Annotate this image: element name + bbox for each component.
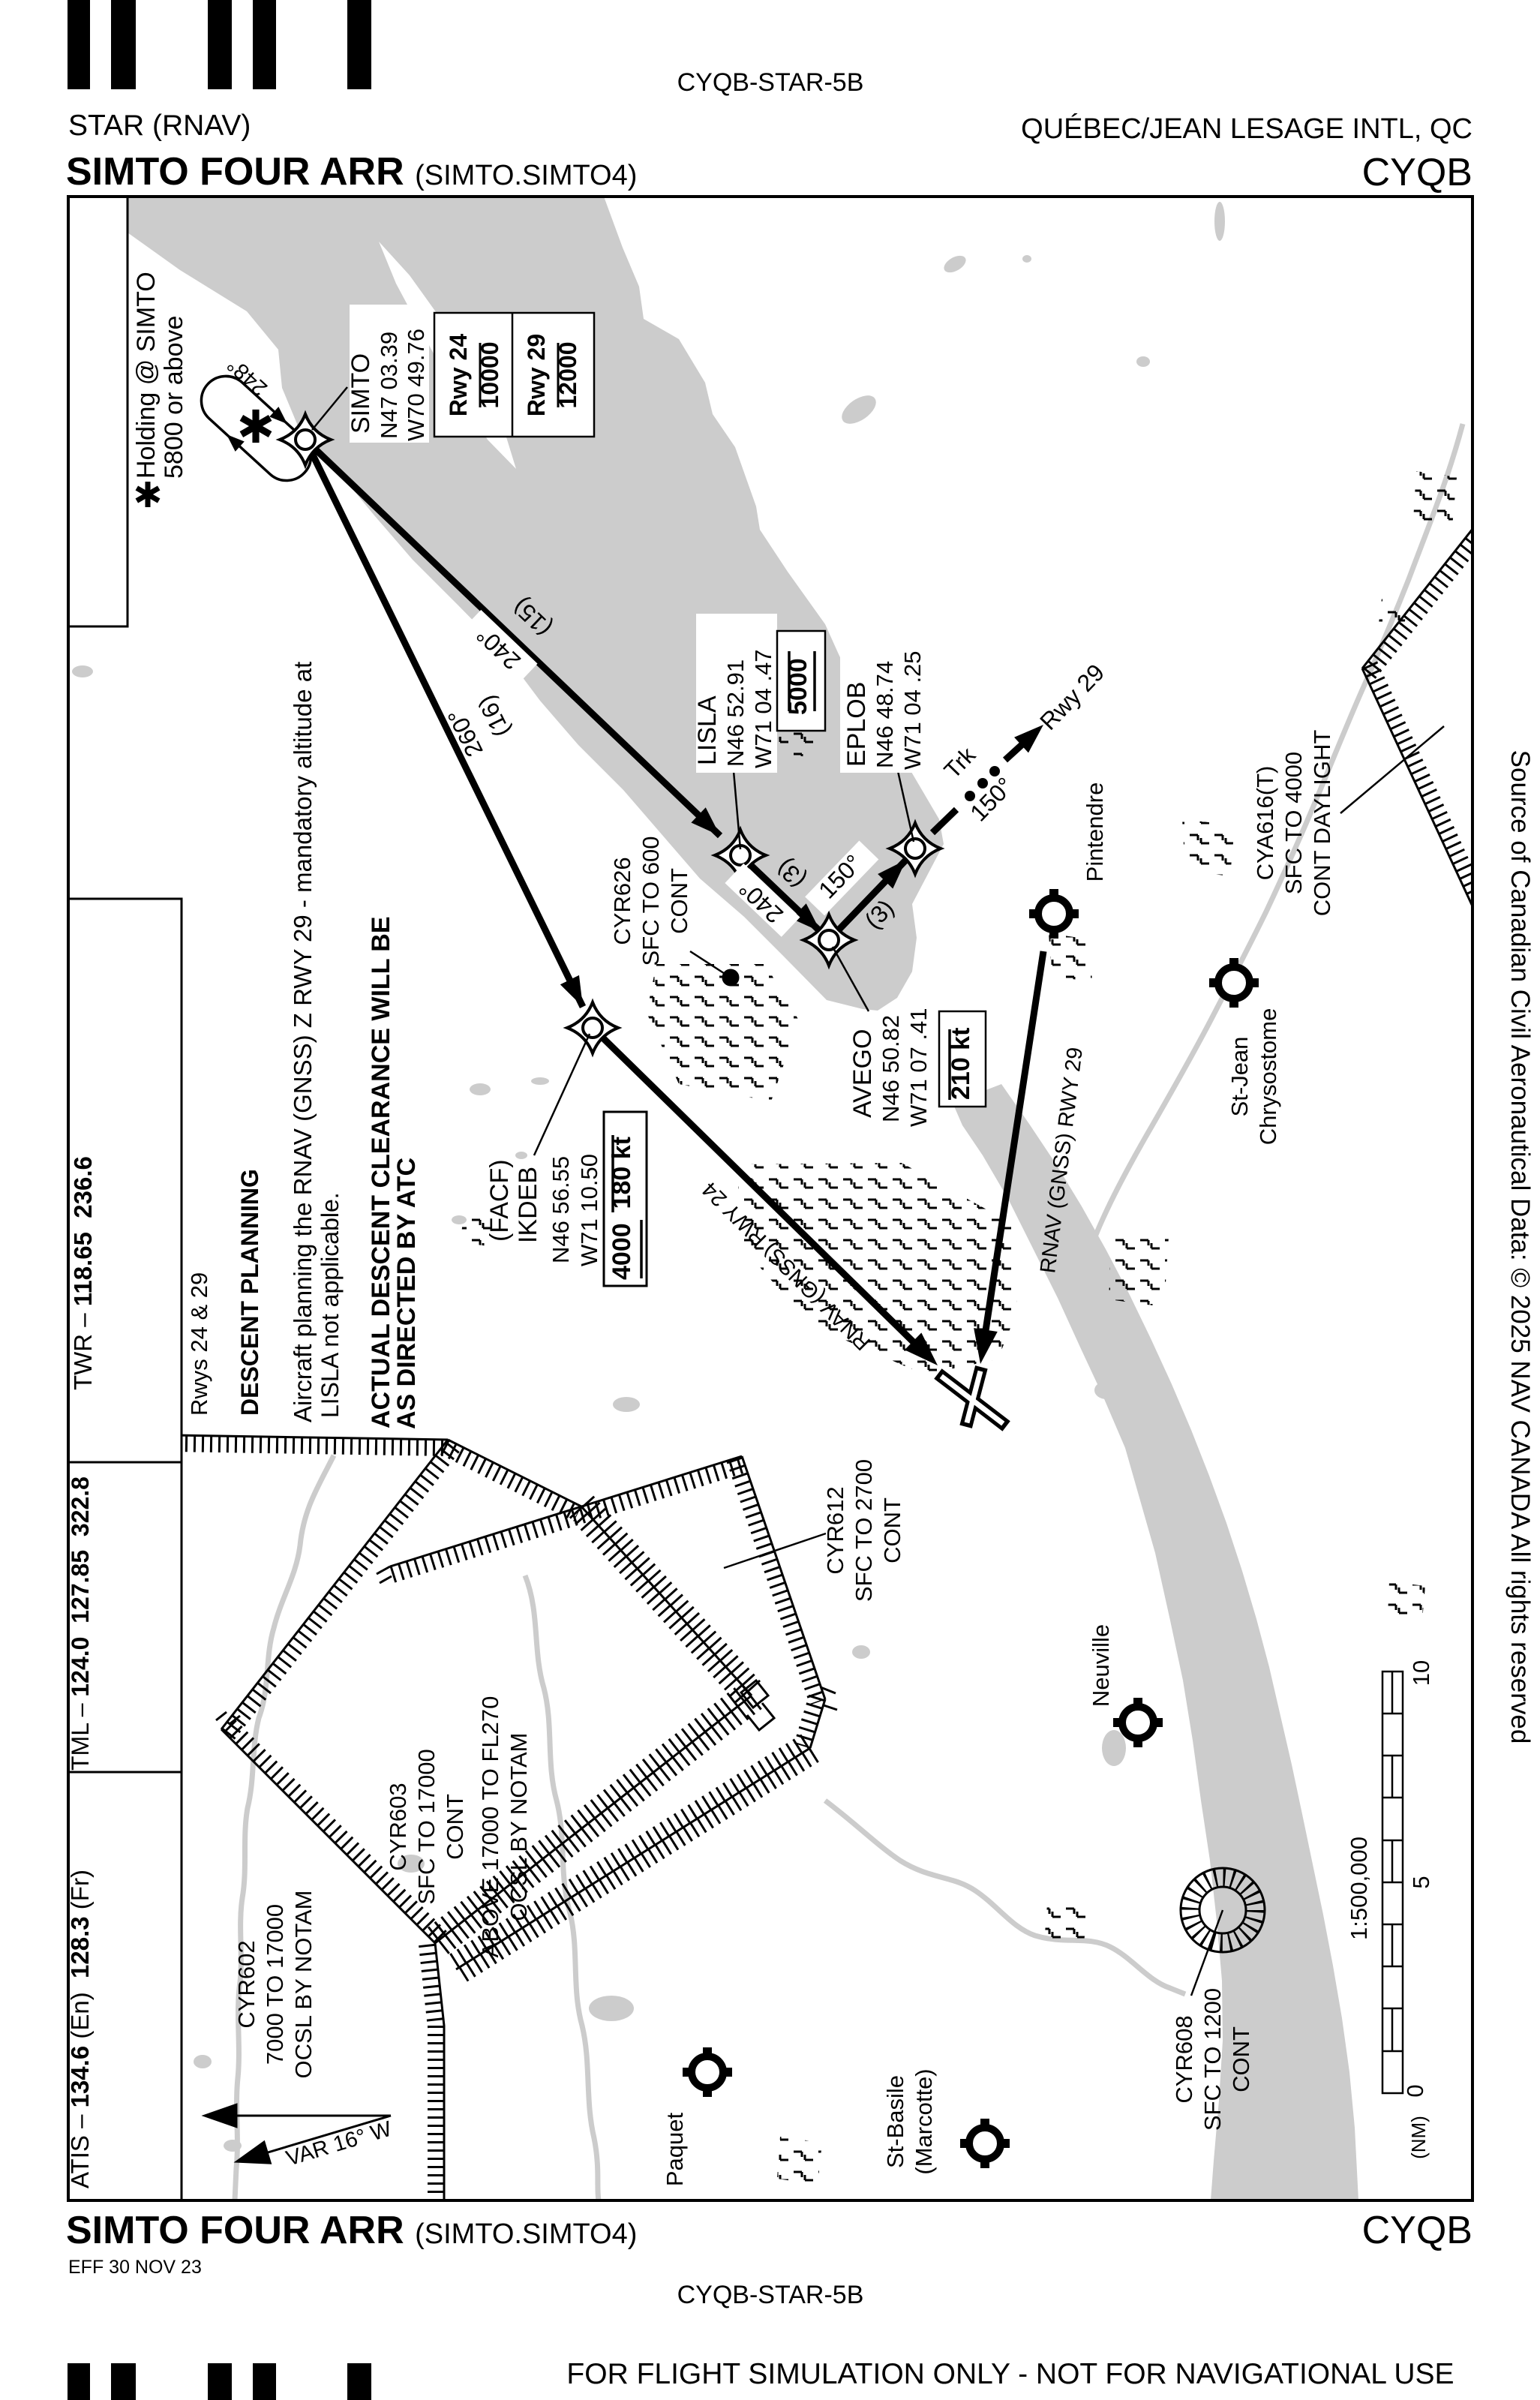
svg-text:150°: 150° bbox=[965, 772, 1019, 827]
svg-text:0: 0 bbox=[1402, 2084, 1428, 2097]
svg-text:(NM): (NM) bbox=[1407, 2116, 1430, 2159]
svg-text:SFC TO 4000: SFC TO 4000 bbox=[1280, 752, 1307, 894]
svg-text:EFF 30 NOV 23: EFF 30 NOV 23 bbox=[68, 2257, 202, 2278]
svg-text:Rwys 24 & 29: Rwys 24 & 29 bbox=[186, 1272, 212, 1416]
svg-text:N46 50.82: N46 50.82 bbox=[878, 1015, 904, 1122]
svg-text:CYR626: CYR626 bbox=[609, 857, 635, 945]
svg-text:CONT: CONT bbox=[879, 1497, 905, 1563]
svg-text:CYQB-STAR-5B: CYQB-STAR-5B bbox=[677, 2281, 864, 2309]
svg-text:Chrysostome: Chrysostome bbox=[1255, 1008, 1281, 1146]
svg-text:DESCENT PLANNING: DESCENT PLANNING bbox=[236, 1169, 263, 1416]
svg-text:W71 04 .25: W71 04 .25 bbox=[899, 650, 926, 770]
svg-text:5800 or above: 5800 or above bbox=[160, 316, 188, 479]
svg-text:TWR – 118.65 236.6: TWR – 118.65 236.6 bbox=[69, 1156, 97, 1390]
svg-text:OCSL BY NOTAM: OCSL BY NOTAM bbox=[506, 1733, 532, 1921]
svg-text:IKDEB: IKDEB bbox=[514, 1167, 542, 1243]
svg-text:CYR602: CYR602 bbox=[233, 1940, 260, 2028]
svg-text:ABOVE 17000 TO FL270: ABOVE 17000 TO FL270 bbox=[477, 1696, 503, 1958]
svg-text:W71 10.50: W71 10.50 bbox=[576, 1154, 602, 1266]
svg-text:LISLA: LISLA bbox=[693, 695, 722, 765]
svg-text:Neuville: Neuville bbox=[1088, 1624, 1114, 1707]
svg-text:N46 52.91: N46 52.91 bbox=[722, 659, 749, 767]
svg-text:QUÉBEC/JEAN LESAGE INTL, QC: QUÉBEC/JEAN LESAGE INTL, QC bbox=[1021, 113, 1472, 145]
svg-text:5: 5 bbox=[1408, 1876, 1434, 1888]
svg-text:St-Jean: St-Jean bbox=[1226, 1037, 1253, 1117]
svg-text:SIMTO: SIMTO bbox=[347, 353, 375, 434]
svg-text:SFC TO 1200: SFC TO 1200 bbox=[1199, 1988, 1226, 2131]
svg-text:TML – 124.0 127.85 322.8: TML – 124.0 127.85 322.8 bbox=[67, 1476, 94, 1771]
svg-text:SFC TO 17000: SFC TO 17000 bbox=[413, 1749, 440, 1904]
svg-text:AS DIRECTED BY ATC: AS DIRECTED BY ATC bbox=[392, 1158, 421, 1429]
svg-text:AVEGO: AVEGO bbox=[848, 1029, 877, 1118]
svg-text:LISLA not applicable.: LISLA not applicable. bbox=[317, 1192, 344, 1418]
svg-text:N47 03.39: N47 03.39 bbox=[376, 332, 402, 439]
svg-text:SIMTO FOUR ARR (SIMTO.SIMTO4): SIMTO FOUR ARR (SIMTO.SIMTO4) bbox=[66, 150, 637, 194]
svg-text:Aircraft planning the RNAV (GN: Aircraft planning the RNAV (GNSS) Z RWY … bbox=[289, 662, 317, 1422]
svg-text:SIMTO FOUR ARR (SIMTO.SIMTO4): SIMTO FOUR ARR (SIMTO.SIMTO4) bbox=[66, 2209, 637, 2252]
svg-text:EPLOB: EPLOB bbox=[842, 682, 871, 767]
svg-text:W71 07 .41: W71 07 .41 bbox=[905, 1008, 932, 1127]
svg-text:(Marcotte): (Marcotte) bbox=[911, 2068, 937, 2174]
svg-text:Holding @ SIMTO: Holding @ SIMTO bbox=[132, 272, 161, 479]
svg-text:(FACF): (FACF) bbox=[485, 1159, 514, 1242]
svg-text:1:500,000: 1:500,000 bbox=[1346, 1837, 1372, 1940]
svg-text:N46 48.74: N46 48.74 bbox=[872, 661, 898, 768]
svg-text:OCSL BY NOTAM: OCSL BY NOTAM bbox=[290, 1891, 317, 2079]
svg-text:FOR FLIGHT SIMULATION ONLY - N: FOR FLIGHT SIMULATION ONLY - NOT FOR NAV… bbox=[566, 2358, 1454, 2390]
svg-text:CYQB-STAR-5B: CYQB-STAR-5B bbox=[677, 68, 864, 97]
svg-text:W70 49.76: W70 49.76 bbox=[403, 329, 429, 441]
svg-text:CYA616(T): CYA616(T) bbox=[1252, 766, 1278, 881]
svg-text:CONT: CONT bbox=[442, 1794, 468, 1860]
svg-text:ATIS – 134.6 (En) 128.3 (Fr): ATIS – 134.6 (En) 128.3 (Fr) bbox=[66, 1870, 94, 2188]
svg-text:Source of Canadian Civil Aeron: Source of Canadian Civil Aeronautical Da… bbox=[1505, 750, 1535, 1744]
svg-text:CYR603: CYR603 bbox=[385, 1783, 411, 1870]
svg-text:Pintendre: Pintendre bbox=[1082, 782, 1108, 882]
svg-text:CYQB: CYQB bbox=[1362, 2209, 1472, 2252]
svg-text:VAR 16° W: VAR 16° W bbox=[284, 2116, 395, 2170]
svg-text:CYQB: CYQB bbox=[1362, 151, 1472, 194]
svg-text:7000 TO 17000: 7000 TO 17000 bbox=[262, 1904, 288, 2065]
svg-text:Rwy 29: Rwy 29 bbox=[523, 334, 550, 416]
svg-text:W71 04 .47: W71 04 .47 bbox=[750, 649, 776, 768]
svg-text:CYR612: CYR612 bbox=[822, 1486, 848, 1574]
svg-text:Rwy 29: Rwy 29 bbox=[1034, 659, 1109, 735]
svg-text:N46 56.55: N46 56.55 bbox=[548, 1156, 574, 1263]
svg-text:Paquet: Paquet bbox=[662, 2112, 688, 2186]
svg-text:STAR (RNAV): STAR (RNAV) bbox=[68, 110, 251, 142]
svg-text:SFC TO 600: SFC TO 600 bbox=[638, 837, 664, 966]
svg-text:St-Basile: St-Basile bbox=[882, 2075, 908, 2168]
svg-text:10: 10 bbox=[1408, 1660, 1434, 1686]
svg-text:CONT: CONT bbox=[666, 868, 692, 934]
svg-text:SFC TO 2700: SFC TO 2700 bbox=[851, 1459, 877, 1602]
svg-text:ACTUAL DESCENT CLEARANCE WILL: ACTUAL DESCENT CLEARANCE WILL BE bbox=[367, 916, 395, 1428]
svg-text:CONT: CONT bbox=[1228, 2026, 1254, 2092]
svg-text:CYR608: CYR608 bbox=[1171, 2015, 1197, 2103]
svg-text:Rwy 24: Rwy 24 bbox=[445, 334, 472, 416]
svg-text:Trk: Trk bbox=[939, 742, 981, 784]
svg-text:248°: 248° bbox=[223, 353, 272, 401]
svg-text:CONT DAYLIGHT: CONT DAYLIGHT bbox=[1309, 730, 1335, 917]
